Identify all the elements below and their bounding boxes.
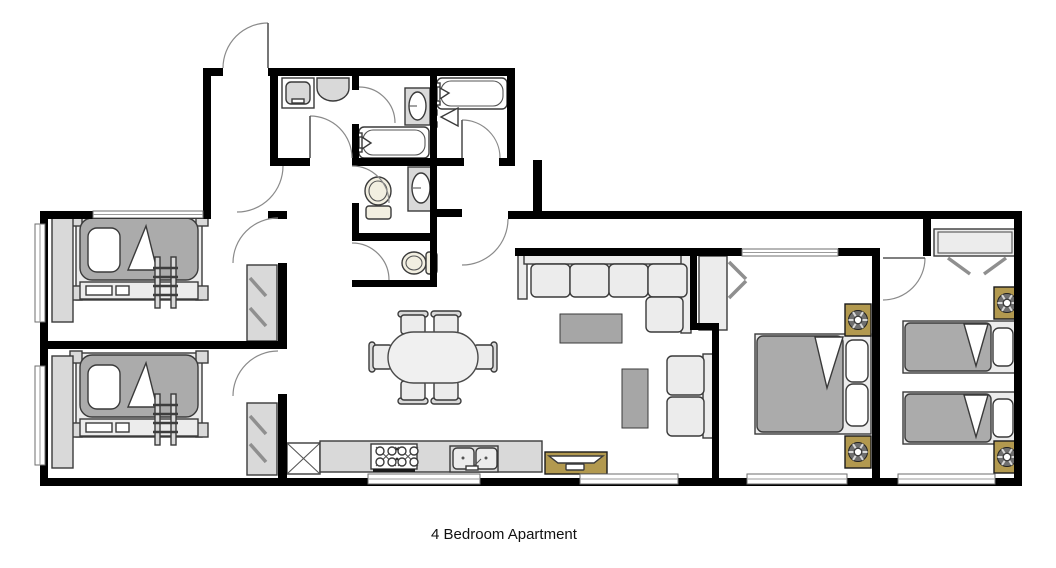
window-bedroom-1: [35, 224, 45, 322]
pillow: [993, 328, 1013, 366]
window-bedroom-2: [35, 366, 45, 465]
closet-bedroom-2: [247, 403, 277, 475]
window-living-room: [580, 474, 678, 484]
dining-chair: [398, 311, 428, 334]
pillow: [88, 228, 120, 272]
vanity-sink-bathroom-2: [405, 88, 430, 125]
bathtub-bathroom-3: [436, 78, 507, 109]
pillow: [846, 340, 868, 382]
entrance-door: [223, 23, 268, 68]
dining-set: [369, 311, 497, 404]
bathtub-bathroom-2: [358, 127, 429, 158]
stove: [371, 444, 418, 472]
window-master-bedroom-bottom: [747, 474, 847, 484]
window-kitchen: [368, 474, 480, 484]
floorplan-caption: 4 Bedroom Apartment: [0, 526, 1008, 543]
twin-bed: [903, 392, 1015, 444]
double-bed: [755, 334, 871, 434]
dining-chair: [398, 381, 428, 404]
door-bedroom-4: [883, 258, 925, 300]
door-bathroom-3: [462, 120, 500, 158]
kitchen-double-sink: [450, 446, 498, 472]
wardrobe-bedroom-1: [52, 218, 73, 322]
nightstand-with-lamp: [845, 304, 871, 336]
wardrobe-bedroom-2: [52, 356, 73, 468]
closet-master-bedroom: [699, 256, 746, 330]
closet-bedroom-4: [934, 229, 1016, 274]
tv-stand: [545, 452, 607, 474]
dining-table: [388, 332, 478, 383]
door-bathroom-2: [359, 87, 395, 123]
window-bedroom-1-top: [93, 211, 203, 218]
floorplan-page: { "floorplan": { "caption": "4 Bedroom A…: [0, 0, 1056, 568]
floorplan-svg: [0, 0, 1056, 568]
door-bedroom-1: [233, 218, 278, 263]
door-bedroom-2: [233, 351, 278, 396]
pillow: [88, 365, 120, 409]
twin-bed: [903, 321, 1015, 373]
toilet-wc-1: [365, 177, 391, 219]
door-wc-2: [352, 243, 389, 280]
loveseat: [667, 354, 713, 438]
entry-inner-door: [237, 166, 283, 212]
bathroom-sink: [317, 78, 349, 101]
door-hallway: [462, 219, 508, 265]
closet-bedroom-1: [247, 265, 277, 341]
pillow: [993, 399, 1013, 437]
pillow: [846, 384, 868, 426]
side-table: [622, 369, 648, 428]
nightstand-with-lamp: [845, 436, 871, 468]
washing-machine: [282, 78, 314, 108]
cabinet-x: [287, 443, 320, 474]
door-bathroom-1: [310, 116, 352, 158]
kitchen-counter: [320, 441, 542, 472]
dining-chair: [431, 381, 461, 404]
bunk-bed-bedroom-1: [70, 214, 208, 308]
window-bedroom-4: [898, 474, 995, 484]
coffee-table: [560, 314, 622, 343]
bunk-bed-bedroom-2: [70, 351, 208, 445]
dining-chair: [431, 311, 461, 334]
window-master-bedroom-top: [742, 249, 838, 256]
